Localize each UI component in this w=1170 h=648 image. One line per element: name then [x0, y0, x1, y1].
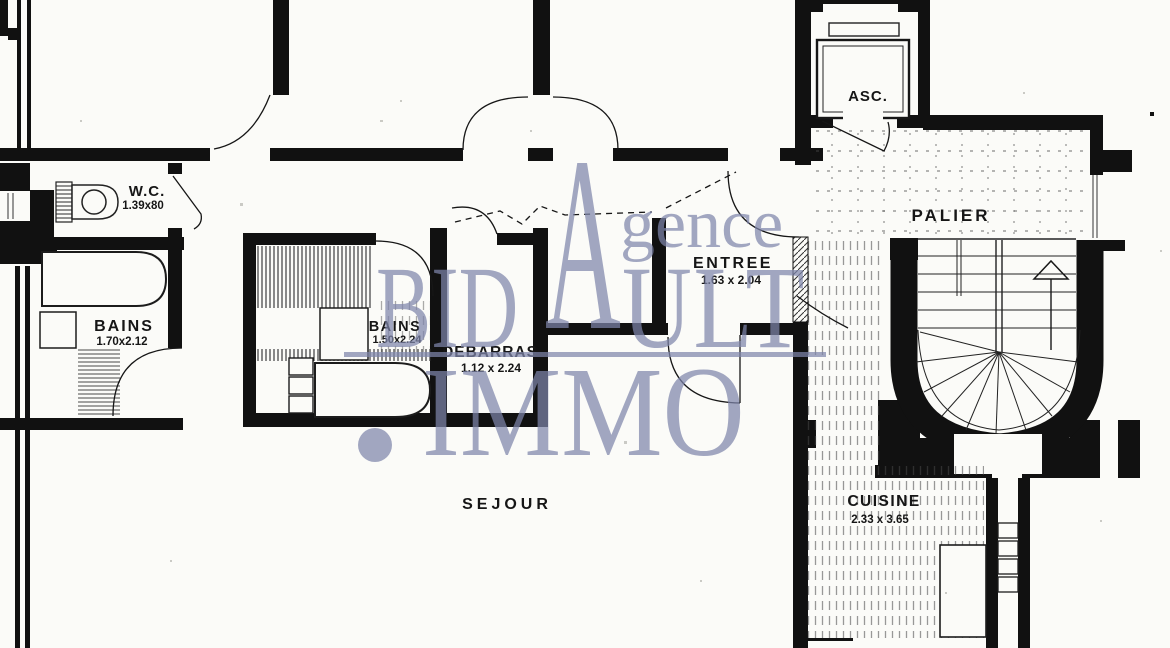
door-arc-double-right	[553, 97, 618, 150]
towel-shelf-icon	[289, 358, 313, 413]
room-label-palier: PALIER	[911, 206, 990, 225]
toilet-icon	[56, 182, 118, 222]
room-label-bains1: BAINS	[94, 318, 154, 335]
room-dims-bains1: 1.70x2.12	[96, 336, 147, 348]
room-label-cuisine: CUISINE	[847, 493, 920, 510]
floor-plan-page: W.C. 1.39x80 BAINS 1.70x2.12 BAINS 1.50x…	[0, 0, 1170, 648]
door-arc-double-left	[463, 97, 528, 150]
partition-hatched-wall	[793, 237, 808, 322]
shower-tray-icon	[320, 308, 368, 360]
washbasin-icon	[40, 312, 76, 348]
door-arc-bains1	[113, 348, 182, 416]
door-arc-entrance	[728, 171, 799, 237]
room-label-wc: W.C.	[129, 183, 166, 200]
paper-specks	[80, 92, 1162, 594]
stairs-icon	[916, 239, 1080, 434]
room-dims-wc: 1.39x80	[122, 200, 164, 212]
door-leaf-elevator	[822, 121, 889, 151]
room-dims-entree: 1.63 x 2.04	[701, 273, 761, 287]
kitchen-counter	[940, 545, 986, 637]
bathtub-icon	[42, 252, 166, 306]
room-label-debarras: DEBARRAS	[442, 344, 538, 361]
room-dims-debarras: 1.12 x 2.24	[461, 361, 521, 375]
room-label-bains2: BAINS	[369, 319, 422, 335]
duct-shaft	[998, 523, 1018, 592]
room-label-sejour: SEJOUR	[462, 496, 552, 513]
door-arc-bains2	[376, 241, 433, 296]
floor-plan-drawing: W.C. 1.39x80 BAINS 1.70x2.12 BAINS 1.50x…	[0, 0, 1170, 648]
door-arc-top-room	[214, 95, 270, 149]
bathtub2-icon	[315, 363, 430, 417]
stairwell-wall	[904, 240, 1090, 478]
room-label-entree: ENTREE	[693, 255, 773, 272]
elevator-cab-icon	[817, 23, 909, 120]
room-label-asc: ASC.	[848, 88, 888, 105]
door-arc-sejour	[668, 337, 740, 403]
opening-break-line	[455, 172, 736, 224]
room-dims-bains2: 1.50x2.24	[373, 334, 423, 346]
room-dims-cuisine: 2.33 x 3.65	[851, 514, 909, 526]
